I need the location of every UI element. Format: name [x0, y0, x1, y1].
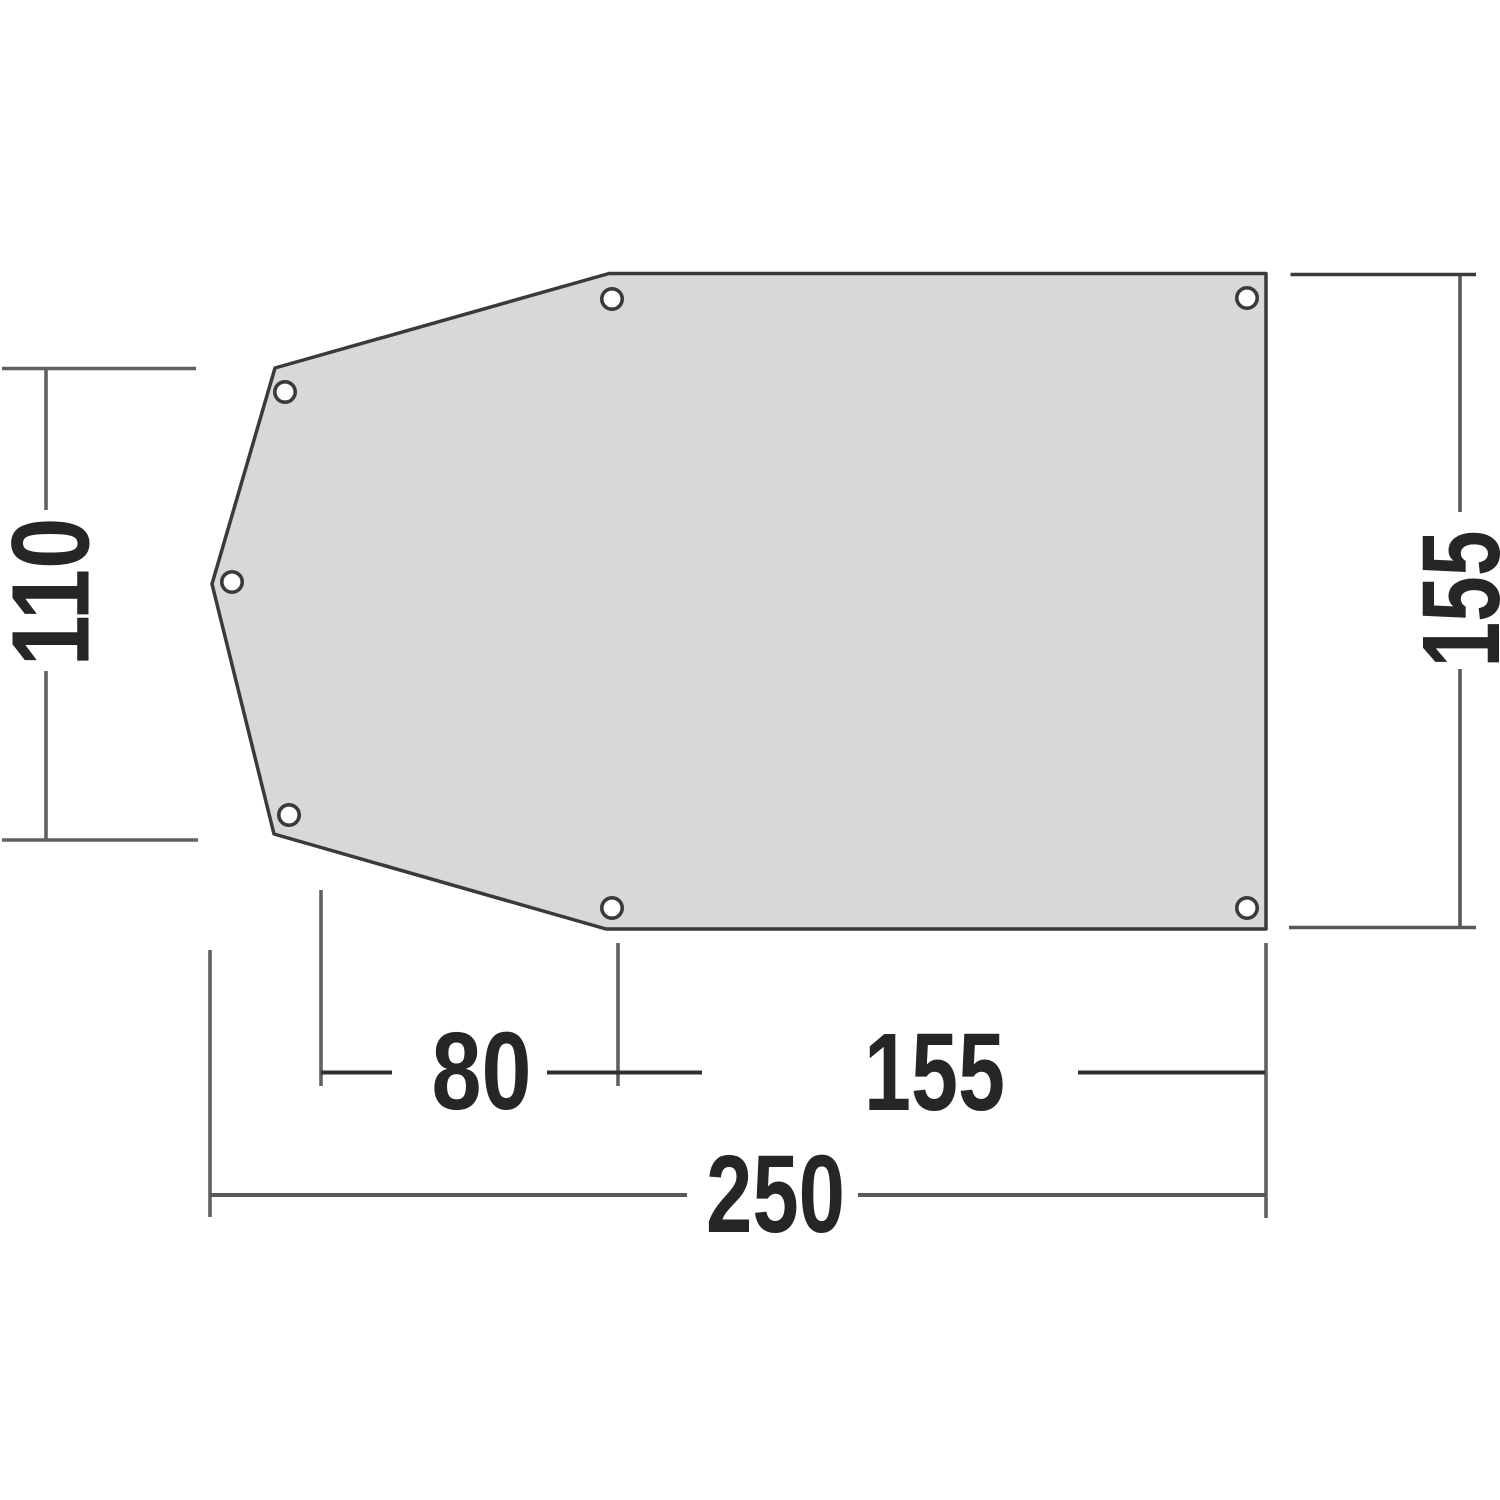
- svg-text:250: 250: [706, 1133, 845, 1256]
- svg-text:110: 110: [0, 518, 112, 667]
- svg-text:155: 155: [1400, 531, 1500, 668]
- svg-text:80: 80: [432, 1010, 532, 1133]
- svg-text:155: 155: [864, 1011, 1005, 1134]
